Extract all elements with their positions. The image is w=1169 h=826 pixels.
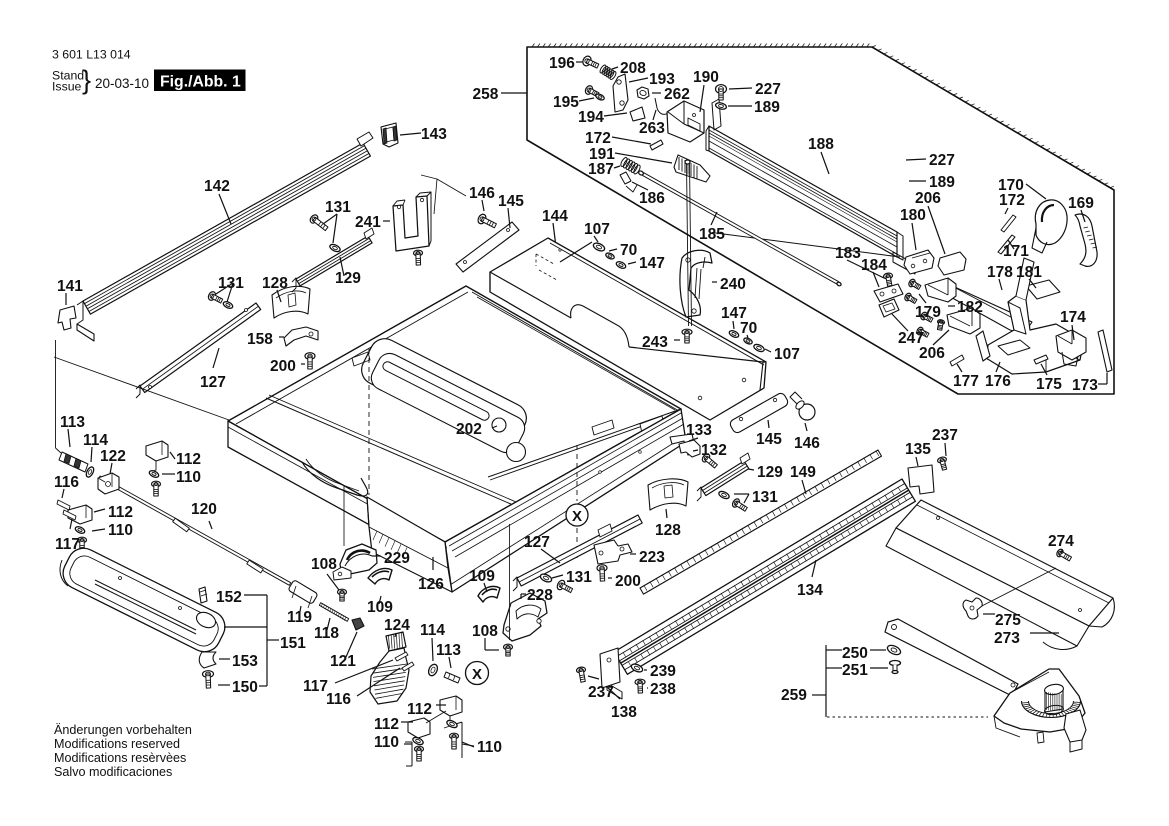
svg-text:176: 176: [985, 373, 1011, 390]
svg-text:122: 122: [100, 448, 126, 465]
svg-text:273: 273: [994, 630, 1020, 647]
svg-text:206: 206: [915, 190, 941, 207]
svg-text:181: 181: [1016, 264, 1042, 281]
svg-text:184: 184: [861, 257, 887, 274]
svg-text:20-03-10: 20-03-10: [95, 76, 149, 91]
svg-text:127: 127: [524, 534, 550, 551]
svg-text:120: 120: [191, 501, 217, 518]
svg-text:194: 194: [578, 109, 604, 126]
svg-text:145: 145: [498, 193, 524, 210]
svg-text:132: 132: [701, 442, 727, 459]
svg-text:144: 144: [542, 208, 568, 225]
svg-text:153: 153: [232, 653, 258, 670]
svg-text:173: 173: [1072, 377, 1098, 394]
svg-text:275: 275: [995, 612, 1021, 629]
svg-text:70: 70: [620, 242, 637, 259]
svg-text:127: 127: [200, 374, 226, 391]
svg-text:146: 146: [469, 185, 495, 202]
svg-text:241: 241: [355, 214, 381, 231]
svg-text:223: 223: [639, 549, 665, 566]
svg-text:112: 112: [407, 701, 432, 718]
svg-text:}: }: [82, 65, 91, 95]
svg-text:158: 158: [247, 331, 273, 348]
svg-text:141: 141: [57, 278, 83, 295]
svg-text:258: 258: [473, 86, 499, 103]
svg-text:243: 243: [642, 334, 668, 351]
svg-text:114: 114: [83, 432, 108, 449]
svg-text:118: 118: [314, 625, 339, 642]
svg-text:70: 70: [740, 320, 757, 337]
svg-text:259: 259: [781, 687, 807, 704]
svg-text:200: 200: [615, 573, 641, 590]
svg-text:Salvo modificaciones: Salvo modificaciones: [54, 765, 172, 779]
svg-text:237: 237: [588, 684, 614, 701]
svg-text:202: 202: [456, 421, 482, 438]
svg-text:228: 228: [527, 587, 553, 604]
svg-text:195: 195: [553, 94, 579, 111]
svg-text:172: 172: [585, 130, 611, 147]
svg-text:107: 107: [584, 221, 610, 238]
svg-text:178: 178: [987, 264, 1013, 281]
svg-text:109: 109: [469, 568, 495, 585]
svg-text:143: 143: [421, 126, 447, 143]
svg-text:177: 177: [953, 373, 979, 390]
svg-text:227: 227: [755, 81, 781, 98]
svg-text:142: 142: [204, 178, 230, 195]
svg-text:183: 183: [835, 245, 861, 262]
svg-text:110: 110: [374, 734, 399, 751]
svg-text:185: 185: [699, 226, 725, 243]
svg-text:229: 229: [384, 550, 410, 567]
svg-text:3 601 L13 014: 3 601 L13 014: [52, 48, 131, 62]
svg-text:131: 131: [566, 569, 592, 586]
svg-text:208: 208: [620, 60, 646, 77]
svg-text:112: 112: [108, 504, 133, 521]
svg-text:175: 175: [1036, 376, 1062, 393]
svg-text:146: 146: [794, 435, 820, 452]
svg-text:180: 180: [900, 207, 926, 224]
svg-text:274: 274: [1048, 533, 1074, 550]
svg-text:110: 110: [176, 469, 201, 486]
svg-text:186: 186: [639, 190, 665, 207]
svg-text:116: 116: [54, 474, 79, 491]
svg-text:179: 179: [915, 304, 941, 321]
svg-text:262: 262: [664, 86, 690, 103]
svg-text:152: 152: [216, 589, 242, 606]
svg-text:149: 149: [790, 464, 816, 481]
svg-text:121: 121: [330, 653, 356, 670]
svg-text:Modifications resèrvèes: Modifications resèrvèes: [54, 751, 186, 765]
svg-text:169: 169: [1068, 195, 1094, 212]
svg-text:124: 124: [384, 617, 410, 634]
svg-text:112: 112: [176, 451, 201, 468]
svg-text:113: 113: [60, 414, 85, 431]
svg-text:131: 131: [325, 199, 351, 216]
svg-text:107: 107: [774, 346, 800, 363]
svg-text:263: 263: [639, 120, 665, 137]
svg-text:182: 182: [957, 299, 983, 316]
svg-text:188: 188: [808, 136, 834, 153]
svg-text:112: 112: [374, 716, 399, 733]
svg-text:138: 138: [611, 704, 637, 721]
svg-text:227: 227: [929, 152, 955, 169]
svg-text:240: 240: [720, 276, 746, 293]
svg-text:145: 145: [756, 431, 782, 448]
svg-text:151: 151: [280, 635, 306, 652]
svg-text:X: X: [472, 666, 482, 683]
svg-text:189: 189: [929, 174, 955, 191]
svg-text:134: 134: [797, 582, 823, 599]
svg-text:113: 113: [436, 642, 461, 659]
svg-text:196: 196: [549, 55, 575, 72]
svg-text:238: 238: [650, 681, 676, 698]
svg-text:190: 190: [693, 69, 719, 86]
svg-text:108: 108: [472, 623, 498, 640]
svg-text:Änderungen vorbehalten: Änderungen vorbehalten: [54, 723, 192, 737]
svg-text:129: 129: [335, 270, 361, 287]
svg-text:116: 116: [326, 691, 351, 708]
svg-text:117: 117: [303, 678, 328, 695]
svg-text:129: 129: [757, 464, 783, 481]
svg-text:126: 126: [418, 576, 444, 593]
svg-text:110: 110: [108, 522, 133, 539]
svg-text:108: 108: [311, 556, 337, 573]
svg-text:171: 171: [1003, 243, 1029, 260]
svg-text:X: X: [572, 508, 582, 525]
svg-text:206: 206: [919, 345, 945, 362]
svg-text:250: 250: [842, 645, 868, 662]
svg-text:239: 239: [650, 663, 676, 680]
svg-text:189: 189: [754, 99, 780, 116]
svg-text:237: 237: [932, 427, 958, 444]
svg-text:251: 251: [842, 662, 868, 679]
svg-text:147: 147: [639, 255, 665, 272]
svg-text:114: 114: [420, 622, 445, 639]
svg-text:128: 128: [262, 275, 288, 292]
svg-text:135: 135: [905, 441, 931, 458]
svg-text:110: 110: [477, 739, 502, 756]
svg-text:128: 128: [655, 522, 681, 539]
svg-text:172: 172: [999, 192, 1025, 209]
svg-text:187: 187: [588, 161, 614, 178]
svg-text:Fig./Abb. 1: Fig./Abb. 1: [160, 74, 241, 91]
svg-text:174: 174: [1060, 309, 1086, 326]
svg-text:200: 200: [270, 358, 296, 375]
svg-text:150: 150: [232, 679, 258, 696]
svg-text:Modifications reserved: Modifications reserved: [54, 737, 180, 751]
svg-text:131: 131: [752, 489, 778, 506]
svg-text:133: 133: [686, 422, 712, 439]
svg-text:Issue: Issue: [52, 80, 82, 94]
